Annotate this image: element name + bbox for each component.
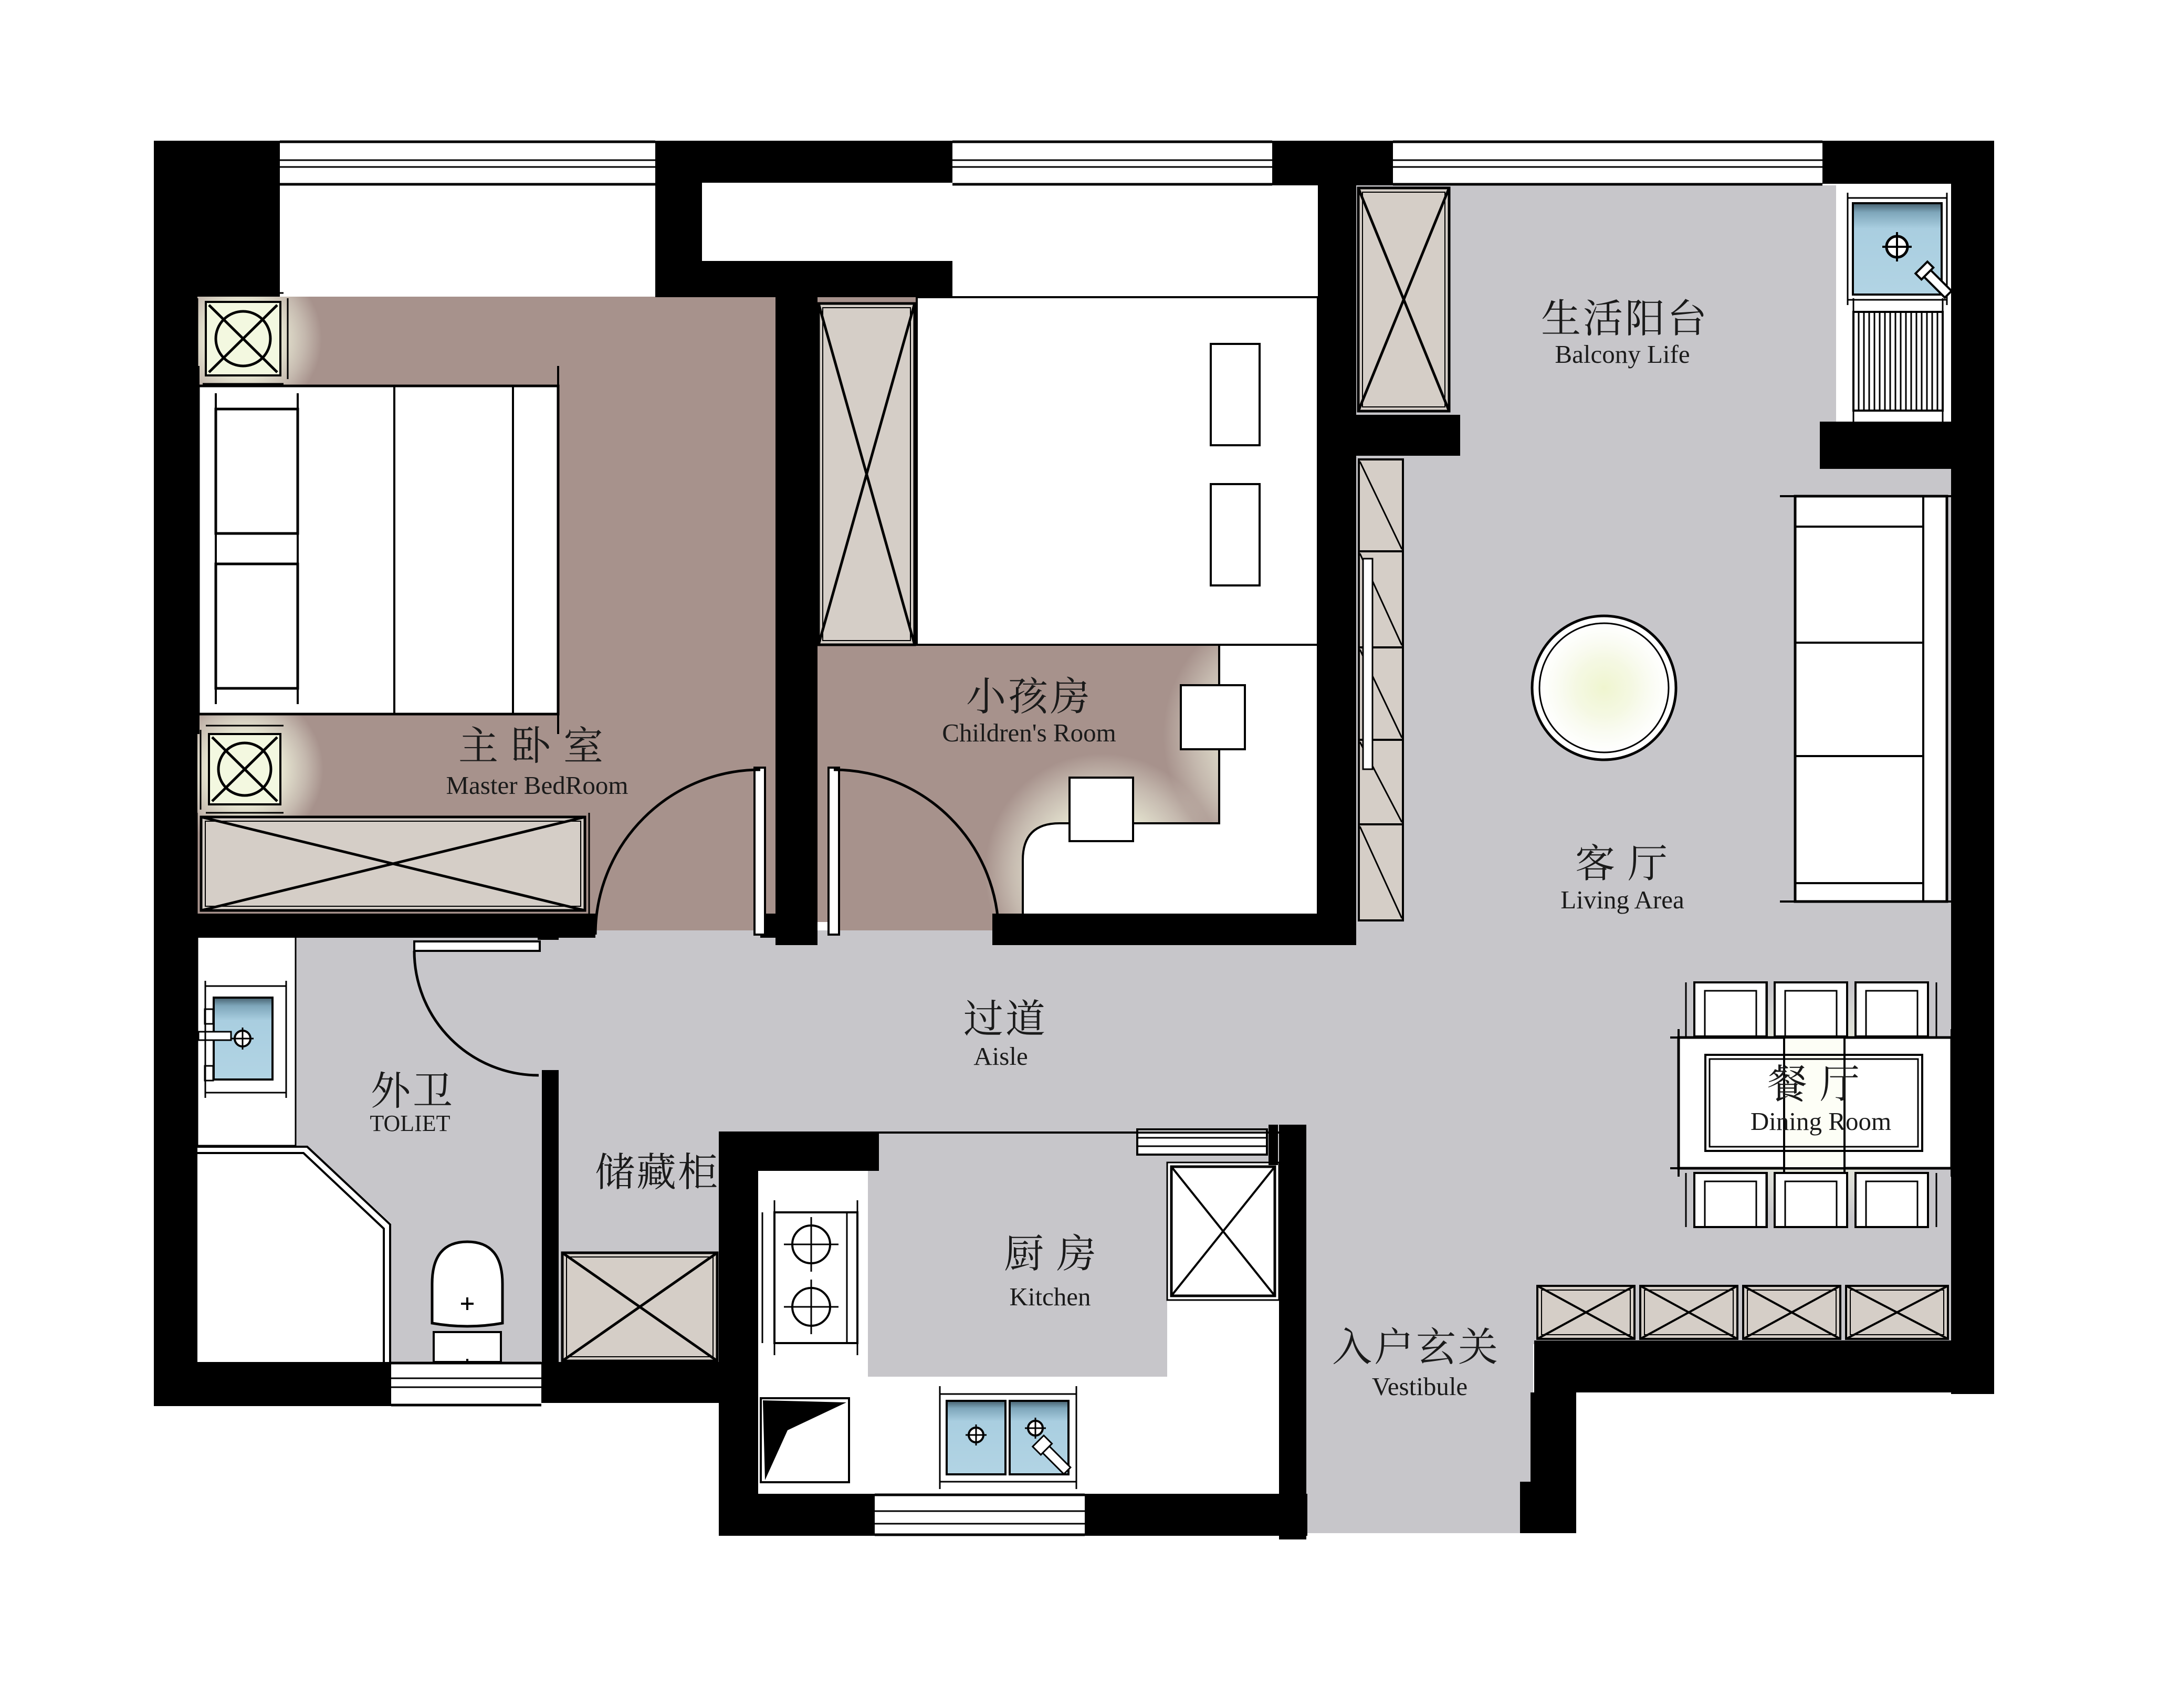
svg-text:Dining Room: Dining Room [1751, 1107, 1891, 1136]
svg-text:Master BedRoom: Master BedRoom [446, 771, 628, 800]
svg-text:Aisle: Aisle [973, 1042, 1028, 1071]
svg-text:Kitchen: Kitchen [1009, 1282, 1091, 1311]
svg-text:TOLIET: TOLIET [370, 1110, 450, 1136]
svg-text:Vestibule: Vestibule [1372, 1372, 1468, 1401]
svg-text:Balcony Life: Balcony Life [1555, 340, 1690, 369]
svg-text:Living Area: Living Area [1560, 885, 1684, 914]
svg-text:Children's Room: Children's Room [942, 718, 1116, 747]
